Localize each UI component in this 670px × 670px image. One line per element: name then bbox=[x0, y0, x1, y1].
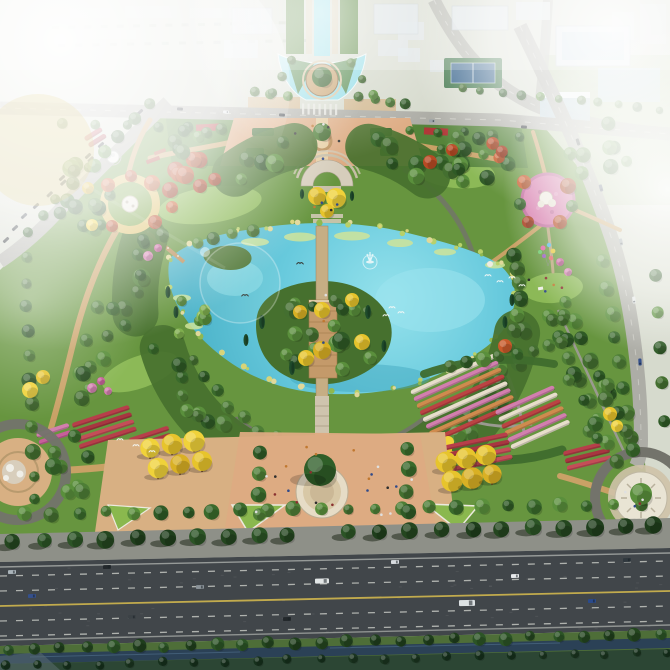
reeds bbox=[496, 262, 500, 266]
reeds bbox=[418, 381, 422, 385]
pedestrian bbox=[336, 203, 339, 206]
pedestrian bbox=[305, 446, 308, 449]
pedestrian bbox=[410, 478, 413, 481]
cypress-tree bbox=[350, 191, 354, 201]
pedestrian bbox=[380, 513, 383, 516]
park-aerial-rendering: Aerial rendering of a landscaped urban p… bbox=[0, 0, 670, 670]
pedestrian bbox=[641, 499, 644, 502]
pedestrian bbox=[274, 493, 277, 496]
reeds bbox=[298, 383, 304, 389]
vehicle bbox=[283, 617, 291, 621]
reeds bbox=[418, 377, 423, 382]
reeds bbox=[473, 352, 476, 355]
pedestrian bbox=[309, 471, 312, 474]
lens-flare-ring bbox=[200, 243, 280, 323]
cypress-tree bbox=[244, 334, 249, 346]
vehicle bbox=[28, 594, 36, 598]
pedestrian bbox=[274, 475, 277, 478]
pedestrian bbox=[352, 449, 355, 452]
reeds bbox=[427, 237, 433, 243]
pedestrian bbox=[322, 341, 325, 344]
reeds bbox=[405, 229, 408, 232]
vehicle bbox=[623, 558, 631, 562]
reeds bbox=[378, 225, 381, 228]
highway bbox=[0, 516, 670, 646]
reeds bbox=[241, 363, 247, 369]
reeds bbox=[454, 246, 458, 250]
pedestrian bbox=[386, 486, 389, 489]
vehicle bbox=[459, 600, 475, 606]
pedestrian bbox=[624, 491, 627, 494]
pedestrian bbox=[395, 485, 398, 488]
pedestrian bbox=[285, 465, 288, 468]
highway-road bbox=[0, 548, 670, 646]
pedestrian bbox=[366, 489, 369, 492]
pedestrian bbox=[325, 294, 328, 297]
reeds bbox=[219, 350, 224, 355]
pedestrian bbox=[368, 477, 371, 480]
reeds bbox=[480, 253, 483, 256]
rendering-stage: Aerial rendering of a landscaped urban p… bbox=[0, 0, 670, 670]
vehicle bbox=[196, 585, 204, 589]
pedestrian bbox=[330, 209, 333, 212]
reeds bbox=[354, 392, 359, 397]
vehicle bbox=[638, 358, 642, 365]
pedestrian bbox=[331, 504, 334, 507]
vehicle bbox=[128, 615, 136, 619]
vehicle bbox=[511, 574, 519, 578]
lake-highlight bbox=[375, 268, 485, 332]
pedestrian bbox=[639, 502, 642, 505]
reeds bbox=[266, 376, 272, 382]
pedestrian bbox=[322, 320, 325, 323]
pedestrian bbox=[315, 502, 318, 505]
reeds bbox=[195, 331, 200, 336]
reeds bbox=[400, 231, 405, 236]
reeds bbox=[393, 386, 396, 389]
lake-dock bbox=[487, 261, 493, 267]
cypress-tree bbox=[510, 294, 515, 306]
cypress-tree bbox=[382, 340, 387, 352]
cypress-tree bbox=[503, 316, 508, 328]
pedestrian bbox=[370, 473, 373, 476]
pedestrian bbox=[255, 511, 258, 514]
vehicle bbox=[391, 560, 399, 564]
vehicle bbox=[315, 578, 329, 583]
pedestrian bbox=[315, 453, 318, 456]
pedestrian bbox=[265, 475, 268, 478]
cypress-tree bbox=[289, 361, 295, 375]
vehicle bbox=[588, 599, 596, 603]
reeds bbox=[458, 243, 462, 247]
reeds bbox=[345, 222, 351, 228]
reeds bbox=[499, 260, 503, 264]
pedestrian bbox=[389, 512, 392, 515]
vehicle bbox=[8, 570, 16, 574]
reeds bbox=[317, 219, 322, 224]
reeds bbox=[329, 388, 335, 394]
pedestrian bbox=[377, 466, 380, 469]
pedestrian bbox=[287, 489, 290, 492]
cypress-tree bbox=[365, 305, 371, 319]
pedestrian bbox=[296, 501, 299, 504]
vehicle bbox=[103, 565, 111, 569]
pedestrian bbox=[634, 505, 637, 508]
